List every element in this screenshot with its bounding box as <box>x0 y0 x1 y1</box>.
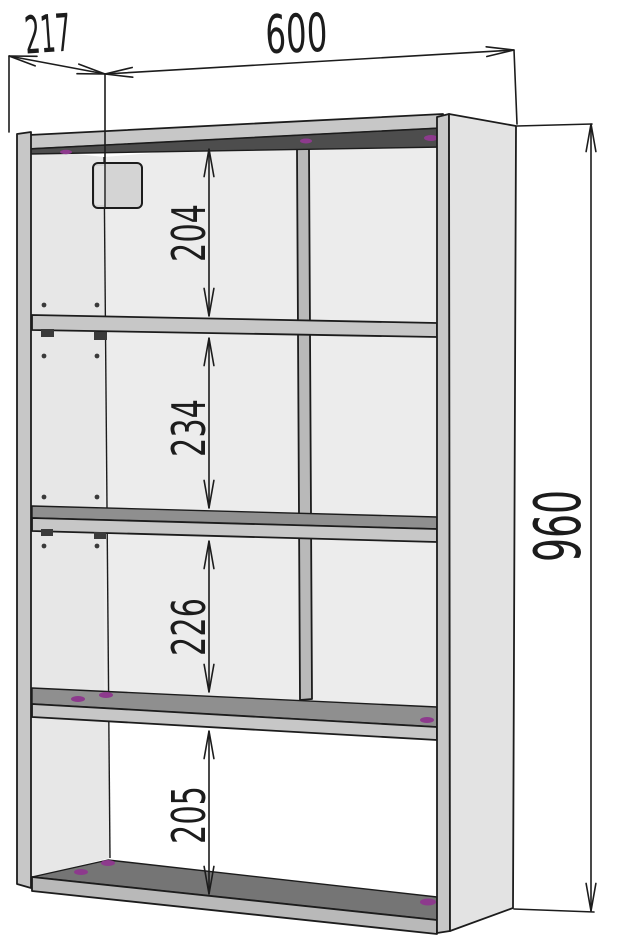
dim-height-label: 960 <box>522 490 596 562</box>
back-panel <box>104 129 437 710</box>
dim-depth-label: 217 <box>23 4 73 67</box>
shelf-pin-hole <box>95 303 100 308</box>
shelf-2-support-fitting <box>94 532 106 539</box>
cam-fitting <box>99 692 113 698</box>
center-divider <box>297 148 312 700</box>
dim-width-label: 600 <box>264 3 328 66</box>
dim-width-ext-right <box>514 50 517 124</box>
right-panel-front-edge <box>437 114 450 933</box>
cam-fitting <box>71 696 85 702</box>
shelf-1-support-fitting <box>94 332 107 340</box>
dim-compartment-3-label: 226 <box>162 598 216 656</box>
dim-height-ext-top <box>517 124 592 126</box>
wall-bracket <box>93 163 142 208</box>
right-side-panel <box>449 114 516 931</box>
cam-fitting <box>60 150 72 154</box>
cam-fitting <box>101 860 115 866</box>
left-panel-front-edge <box>17 132 31 888</box>
wall-bracket-side-face <box>95 166 104 205</box>
shelf-pin-hole <box>95 354 100 359</box>
dim-height-ext-bottom <box>514 909 594 912</box>
shelf-unit-technical-drawing: 217 600 960 204 234 226 205 <box>0 0 640 940</box>
cam-fitting <box>74 869 88 875</box>
shelf-pin-hole <box>95 544 100 549</box>
shelf-pin-hole <box>42 303 47 308</box>
dim-compartment-1-label: 204 <box>162 204 216 262</box>
cam-fitting <box>300 139 312 144</box>
cam-fitting <box>420 717 434 723</box>
shelf-pin-hole <box>42 495 47 500</box>
dim-compartment-2-label: 234 <box>162 399 216 457</box>
cam-fitting <box>420 899 436 906</box>
shelf-1-support-fitting <box>41 329 54 337</box>
dim-compartment-4-label: 205 <box>162 786 216 844</box>
cam-fitting <box>424 135 438 141</box>
drawing-canvas: 217 600 960 204 234 226 205 <box>0 0 640 940</box>
shelf-2-support-fitting <box>41 529 53 536</box>
shelf-pin-hole <box>95 495 100 500</box>
cabinet-body <box>17 114 516 934</box>
shelf-pin-hole <box>42 544 47 549</box>
shelf-pin-hole <box>42 354 47 359</box>
